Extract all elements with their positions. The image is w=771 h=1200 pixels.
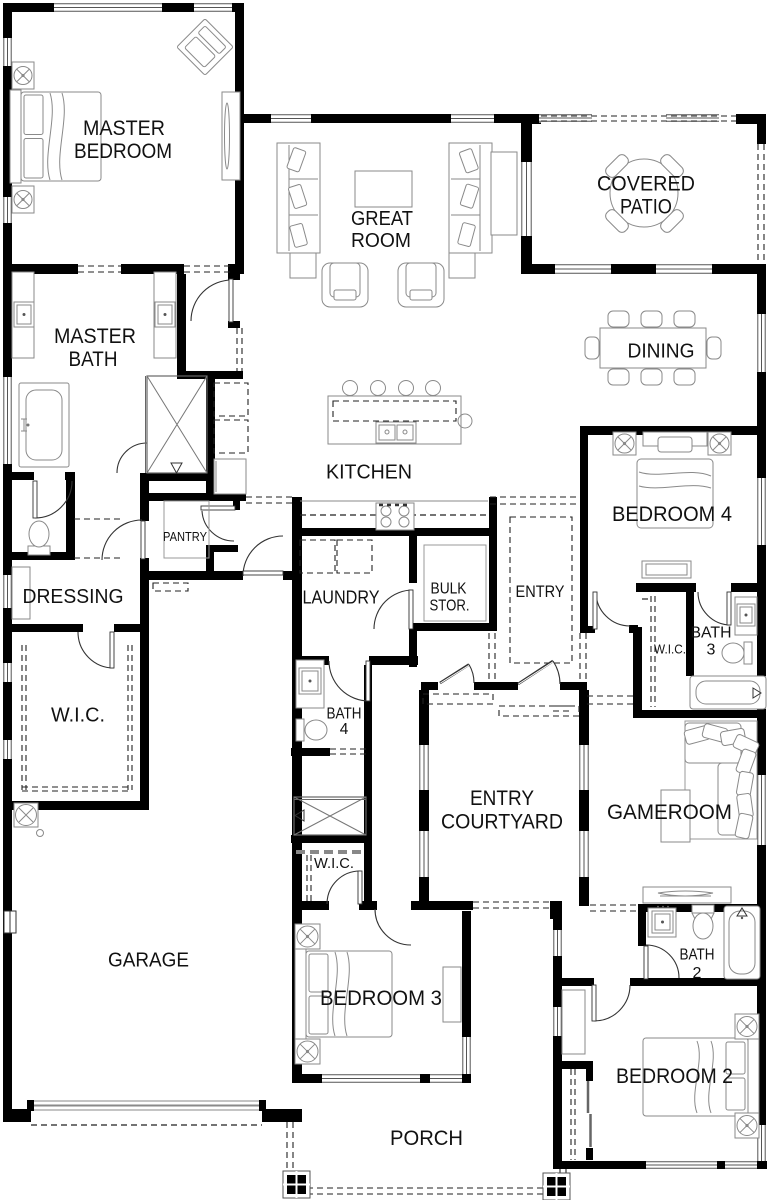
svg-text:W.I.C.: W.I.C. [314,856,354,872]
svg-text:DRESSING: DRESSING [23,585,124,608]
svg-text:ENTRY: ENTRY [516,583,565,601]
svg-text:COVERED: COVERED [597,173,695,196]
svg-text:BATH: BATH [691,625,732,642]
svg-text:MASTER: MASTER [83,116,165,140]
svg-text:W.I.C.: W.I.C. [654,642,686,657]
svg-text:COURTYARD: COURTYARD [441,811,563,834]
svg-text:3: 3 [707,642,716,659]
svg-text:ENTRY: ENTRY [470,787,534,810]
svg-text:BATH: BATH [69,347,118,371]
svg-text:PORCH: PORCH [390,1127,463,1150]
svg-text:BEDROOM 3: BEDROOM 3 [320,987,442,1010]
svg-text:GREAT: GREAT [351,208,413,230]
svg-text:2: 2 [693,965,702,982]
svg-text:STOR.: STOR. [430,598,470,615]
svg-text:ROOM: ROOM [351,230,411,252]
svg-text:BEDROOM 2: BEDROOM 2 [616,1065,733,1088]
svg-text:BEDROOM: BEDROOM [74,139,172,163]
svg-text:DINING: DINING [628,339,695,362]
svg-text:MASTER: MASTER [54,324,136,348]
svg-text:BEDROOM 4: BEDROOM 4 [612,503,732,526]
svg-text:BULK: BULK [431,581,467,598]
svg-text:PANTRY: PANTRY [163,530,208,544]
svg-text:KITCHEN: KITCHEN [326,460,412,483]
svg-text:BATH: BATH [680,947,715,964]
svg-text:PATIO: PATIO [620,196,672,219]
svg-text:GAMEROOM: GAMEROOM [607,801,732,824]
svg-text:4: 4 [340,721,349,738]
svg-text:W.I.C.: W.I.C. [51,705,105,727]
svg-text:GARAGE: GARAGE [108,948,189,971]
svg-text:LAUNDRY: LAUNDRY [303,587,380,608]
svg-text:BATH: BATH [327,706,362,723]
